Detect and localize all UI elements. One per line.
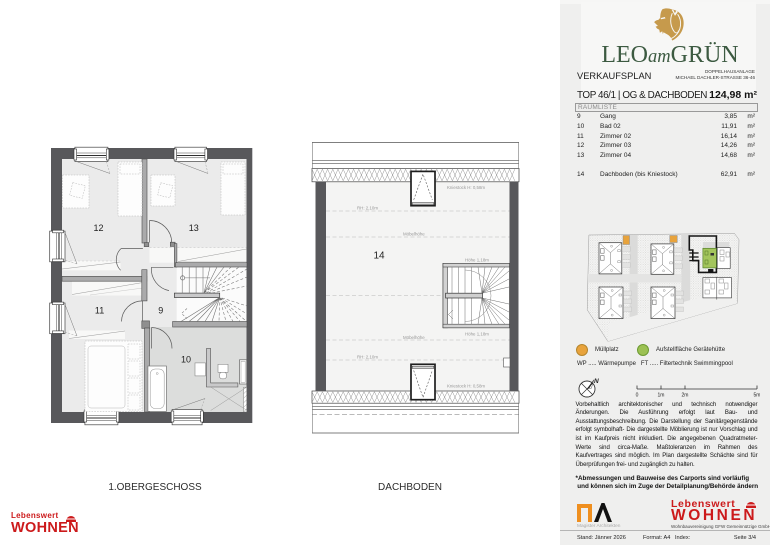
svg-text:Kniestock H: 0,58m: Kniestock H: 0,58m (447, 384, 485, 389)
svg-text:N: N (594, 378, 599, 385)
svg-text:0: 0 (636, 393, 639, 399)
svg-text:RH: 2,10m: RH: 2,10m (357, 206, 378, 211)
svg-text:11: 11 (95, 306, 104, 316)
svg-text:14: 14 (373, 251, 385, 262)
svg-text:12: 12 (93, 223, 103, 233)
svg-text:Möbelhöhe: Möbelhöhe (403, 335, 425, 340)
svg-text:Höhe 1,18m: Höhe 1,18m (465, 332, 489, 337)
svg-text:RH: 2,10m: RH: 2,10m (357, 355, 378, 360)
svg-text:Höhe 1,18m: Höhe 1,18m (465, 258, 489, 263)
svg-text:5m: 5m (754, 393, 760, 399)
svg-text:Möbelhöhe: Möbelhöhe (403, 232, 425, 237)
svg-text:10: 10 (181, 355, 191, 365)
svg-text:Kniestock H: 0,58m: Kniestock H: 0,58m (447, 185, 485, 190)
svg-text:2m: 2m (682, 393, 689, 399)
svg-text:13: 13 (189, 223, 199, 233)
svg-text:1m: 1m (658, 393, 665, 399)
svg-text:9: 9 (158, 306, 163, 316)
